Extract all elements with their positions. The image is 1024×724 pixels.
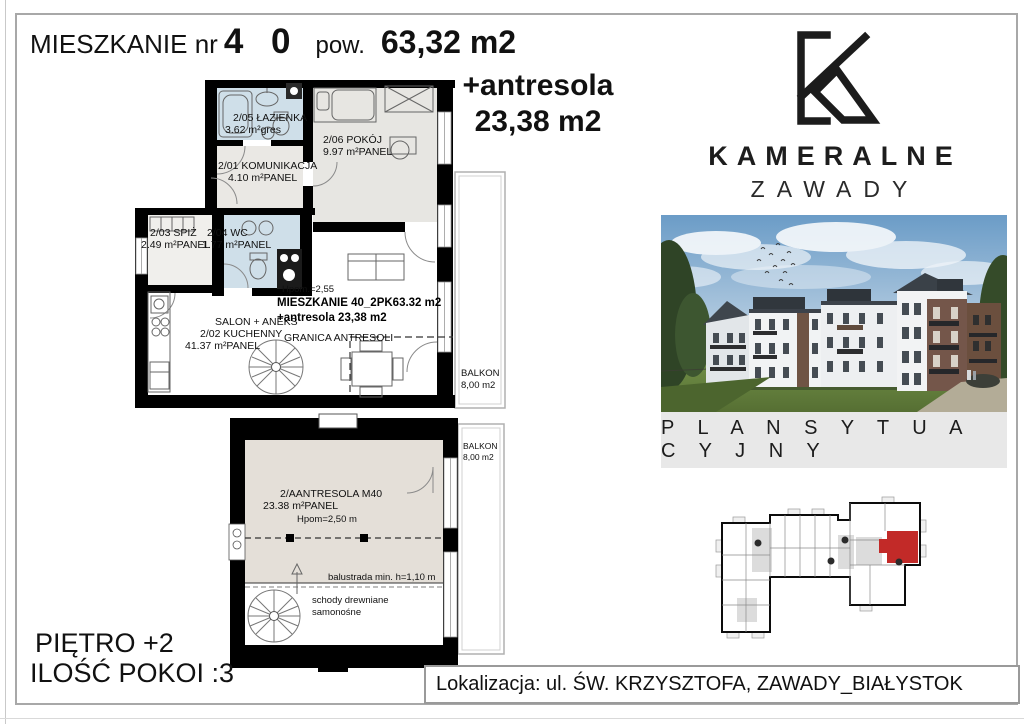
sofa: [348, 254, 404, 280]
brand-name: KAMERALNE: [700, 141, 970, 172]
antresola-floor-plan: BALKON 8,00 m2 2/AANTRESOLA M40 23.38 m²…: [222, 412, 512, 674]
salon-area-label: 41.37 m²PANEL: [185, 340, 260, 352]
washing-machine: [286, 83, 302, 99]
antresola-name: 2/AANTRESOLA M40: [280, 488, 382, 500]
balkon-area-label: 8,00 m2: [463, 452, 494, 462]
balkon-area-label: 8,00 m2: [461, 380, 495, 391]
boiler-unit: [277, 249, 302, 289]
hall-area-label: 4.10 m²PANEL: [228, 172, 297, 184]
salon-label2: 2/02 KUCHENNY: [200, 328, 282, 340]
section-strip: P L A N S Y T U A C Y J N Y: [661, 412, 1007, 468]
area-value: 63,32 m2: [381, 24, 516, 61]
title-prefix: MIESZKANIE nr: [30, 29, 218, 60]
roof-notch: [319, 414, 357, 428]
hall-label: 2/01 KOMUNIKACJA: [218, 160, 317, 172]
spiral-stairs: [248, 590, 300, 642]
location-box: Lokalizacja: ul. ŚW. KRZYSZTOFA, ZAWADY_…: [424, 665, 1020, 704]
building-render-photo: [661, 215, 1007, 412]
pantry-area-label: 2.49 m²PANEL: [141, 239, 210, 251]
room-label: 2/06 POKÓJ: [323, 133, 382, 146]
section-label: P L A N S Y T U A C Y J N Y: [661, 417, 1007, 463]
stairs-label-2: samonośne: [312, 607, 361, 618]
bathroom-area-label: 3.62 m²gres: [225, 124, 281, 136]
kameralne-k-logo-icon: [785, 28, 885, 128]
rooms-count-label: ILOŚĆ POKOI :3: [30, 658, 234, 689]
apartment-title: MIESZKANIE nr 4 0 pow. 63,32 m2: [30, 22, 516, 62]
site-plan: [700, 485, 1020, 670]
wc-area-label: 1.77 m²PANEL: [202, 239, 271, 251]
balkon-label: BALKON: [463, 441, 498, 451]
granica-label: GRANICA ANTRESOLI: [284, 332, 393, 344]
main-floor-plan: BALKON 8,00 m2: [128, 76, 520, 416]
balustrade-line: [245, 583, 443, 587]
wc-label: 2/04 WC: [207, 227, 248, 239]
apartment-number: 4 0: [224, 22, 300, 62]
antresola-height: Hpom=2,50 m: [297, 514, 357, 525]
flyer-page: { "header": { "title": "MIESZKANIE nr", …: [0, 0, 1024, 724]
brand-logo-block: KAMERALNE ZAWADY: [700, 28, 970, 203]
location-label: Lokalizacja: ul. ŚW. KRZYSZTOFA, ZAWADY_…: [436, 673, 963, 696]
area-label: pow.: [315, 32, 364, 60]
pantry-label: 2/03 SPIŻ: [150, 226, 197, 239]
kitchen-units: [148, 292, 170, 392]
antresola-area-label: 23.38 m²PANEL: [263, 500, 338, 512]
stairs-label-1: schody drewniane: [312, 595, 389, 606]
room-area-label: 9.97 m²PANEL: [323, 146, 392, 158]
balcony-main: BALKON 8,00 m2: [455, 172, 505, 408]
floor-label: PIĘTRO +2: [35, 628, 174, 659]
height-note: Hpom.=2,55: [282, 284, 334, 295]
balustrada-label: balustrada min. h=1,10 m: [328, 572, 436, 583]
balcony-antresola: BALKON 8,00 m2: [458, 424, 504, 654]
apartment-note-line2: +antresola 23,38 m2: [277, 312, 387, 324]
apartment-note-line1: MIESZKANIE 40_2PK63.32 m2: [277, 297, 441, 309]
balkon-label: BALKON: [461, 368, 500, 379]
page-left-rule: [5, 0, 6, 724]
bathroom-label: 2/05 ŁAZIENKA: [233, 112, 307, 124]
page-bottom-rule: [0, 718, 1024, 719]
brand-city: ZAWADY: [700, 176, 970, 203]
